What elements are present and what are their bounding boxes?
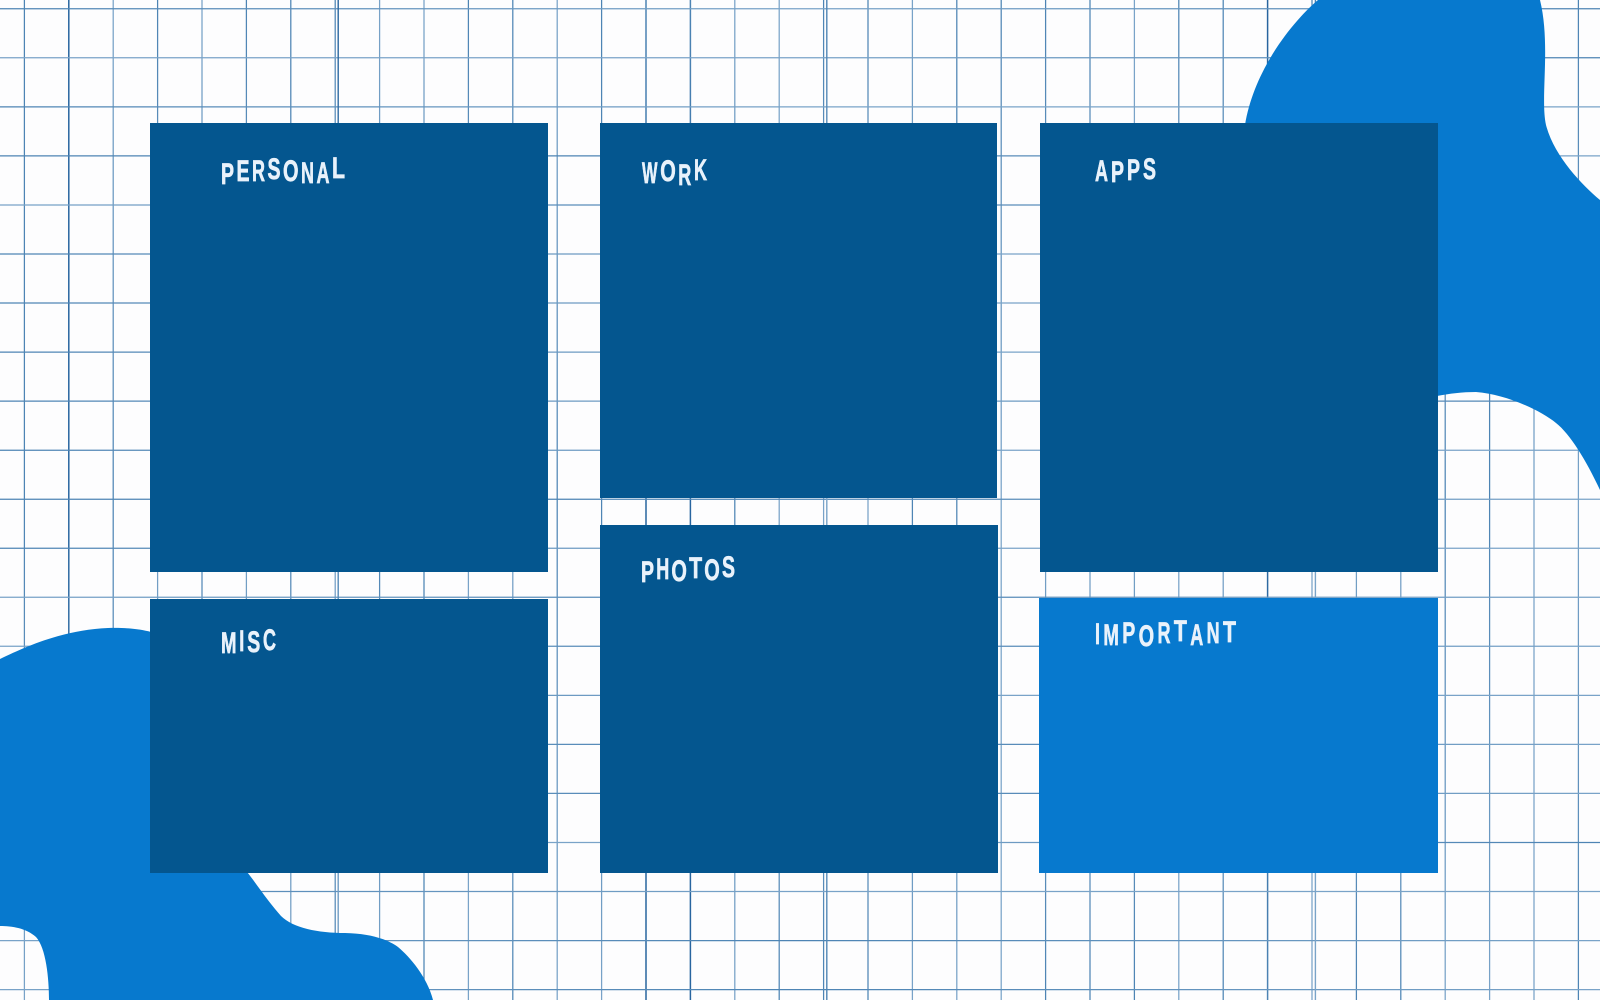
- svg-text:C: C: [263, 624, 276, 657]
- svg-text:R: R: [252, 155, 265, 188]
- svg-text:E: E: [237, 155, 250, 188]
- svg-text:L: L: [332, 152, 345, 185]
- svg-text:R: R: [678, 159, 691, 192]
- svg-text:T: T: [689, 552, 702, 585]
- svg-text:W: W: [642, 157, 658, 190]
- svg-text:P: P: [1111, 156, 1124, 189]
- svg-text:O: O: [704, 554, 720, 587]
- svg-text:P: P: [1127, 154, 1140, 187]
- svg-text:I: I: [239, 625, 244, 658]
- svg-text:P: P: [641, 556, 654, 589]
- svg-text:S: S: [722, 551, 735, 584]
- svg-text:I: I: [1095, 618, 1100, 651]
- svg-text:M: M: [1103, 619, 1119, 652]
- svg-text:R: R: [1158, 617, 1171, 650]
- svg-text:S: S: [247, 626, 260, 659]
- svg-text:P: P: [221, 158, 234, 191]
- svg-text:O: O: [660, 155, 676, 188]
- svg-text:M: M: [221, 627, 237, 660]
- svg-text:K: K: [694, 154, 707, 187]
- svg-text:A: A: [1190, 619, 1203, 652]
- svg-text:T: T: [1174, 615, 1187, 648]
- svg-text:N: N: [1207, 617, 1220, 650]
- svg-text:S: S: [268, 153, 281, 186]
- svg-text:P: P: [1122, 617, 1135, 650]
- svg-text:N: N: [301, 157, 314, 190]
- svg-text:A: A: [1095, 155, 1108, 188]
- svg-text:H: H: [656, 553, 669, 586]
- svg-text:O: O: [671, 555, 687, 588]
- svg-text:T: T: [1223, 616, 1236, 649]
- svg-text:O: O: [283, 155, 299, 188]
- svg-text:S: S: [1143, 153, 1156, 186]
- svg-text:O: O: [1139, 620, 1155, 653]
- svg-text:A: A: [317, 157, 330, 190]
